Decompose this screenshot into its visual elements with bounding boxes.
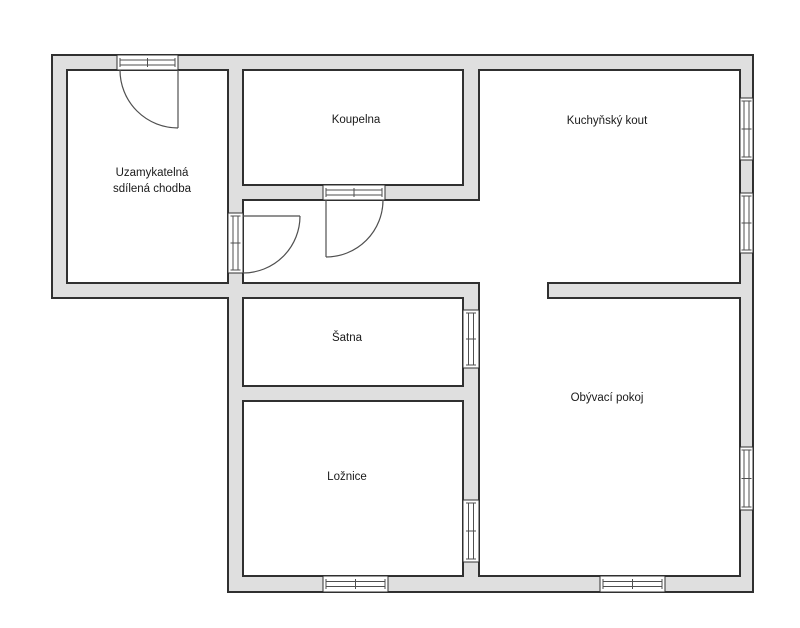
entrance-door-swing — [120, 70, 178, 128]
hallway-door-frame — [228, 213, 243, 273]
room-label-bathroom: Koupelna — [332, 114, 381, 126]
room-label-closet: Šatna — [332, 331, 363, 344]
bedroom-window — [323, 576, 388, 592]
hallway-door-swing — [243, 216, 300, 273]
room-label-living-room: Obývací pokoj — [571, 392, 644, 404]
walls — [52, 55, 753, 592]
bathroom-door-swing — [326, 200, 383, 257]
room-label-hallway-line2: sdílená chodba — [113, 183, 192, 195]
room-label-bedroom: Ložnice — [327, 471, 367, 483]
living-room-window-right — [740, 447, 753, 510]
room-label-kitchen: Kuchyňský kout — [567, 115, 648, 127]
floor-plan: Uzamykatelná sdílená chodba Koupelna Kuc… — [0, 0, 800, 628]
kitchen-window-2 — [740, 193, 753, 253]
closet-door-frame — [463, 310, 479, 368]
bedroom-door-frame — [463, 500, 479, 562]
kitchen-window-1 — [740, 98, 753, 160]
entrance-door-frame — [117, 55, 178, 70]
living-room-window-bottom — [600, 576, 665, 592]
bathroom-door-frame — [323, 185, 385, 200]
room-label-hallway-line1: Uzamykatelná — [116, 167, 189, 179]
